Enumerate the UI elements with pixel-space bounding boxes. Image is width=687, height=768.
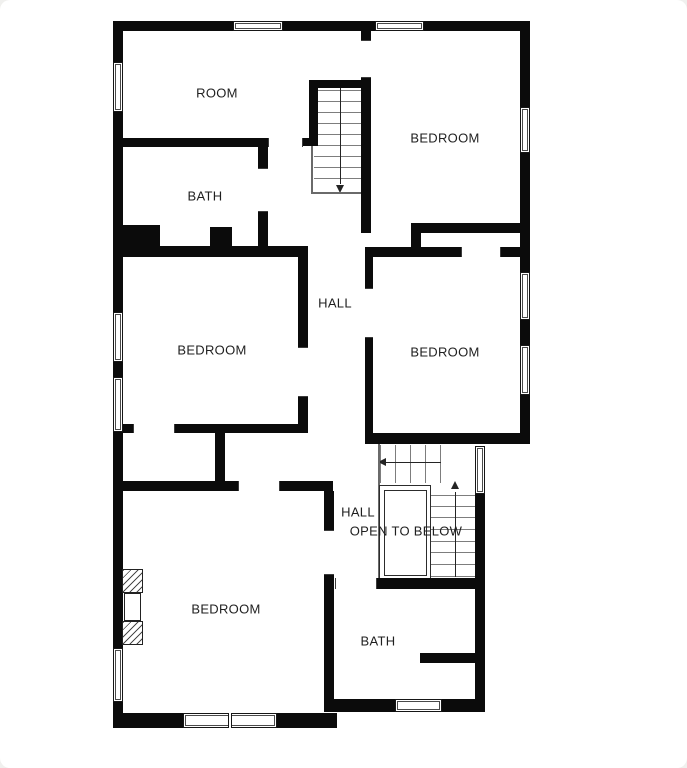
wall-segment <box>411 223 530 233</box>
door-opening <box>258 168 268 212</box>
wall-segment <box>324 491 334 530</box>
door-jamb <box>461 247 462 257</box>
floor-plan: ROOMBATHHALLBEDROOMBEDROOMBEDROOMBEDROOM… <box>0 0 687 768</box>
wall-segment <box>365 338 373 433</box>
room-label-hall-upper: HALL <box>318 296 352 311</box>
wall-segment <box>277 713 337 728</box>
wall-segment <box>475 494 485 712</box>
wall-segment <box>113 21 233 31</box>
door-opening <box>324 530 334 575</box>
stair-up-arrow <box>451 481 459 489</box>
wall-segment <box>298 257 308 347</box>
stair-tread <box>410 445 411 483</box>
window-glass-line <box>115 650 121 700</box>
stair-tread <box>314 134 361 135</box>
door-jamb <box>376 578 377 589</box>
door-jamb <box>298 347 308 348</box>
stair-tread <box>431 564 475 565</box>
room-label-bedroom-mid-right: BEDROOM <box>410 345 479 360</box>
door-jamb <box>302 138 303 147</box>
door-jamb <box>361 40 371 41</box>
window-glass-line <box>377 23 422 29</box>
room-label-open-to-below: OPEN TO BELOW <box>350 524 463 539</box>
wall-segment <box>365 257 373 288</box>
wall-segment <box>113 362 123 377</box>
wall-segment <box>520 21 530 107</box>
floor-plan-image: ROOMBATHHALLBEDROOMBEDROOMBEDROOMBEDROOM… <box>0 0 687 768</box>
door-jamb <box>268 138 269 147</box>
stair-direction-line <box>385 462 441 463</box>
door-jamb <box>365 337 373 338</box>
wall-segment <box>210 227 232 246</box>
stair-tread <box>314 123 361 124</box>
door-opening <box>361 40 371 78</box>
fireplace-firebox <box>124 593 141 621</box>
stair-tread <box>314 145 361 146</box>
wall-segment <box>501 247 520 257</box>
wall-segment <box>420 653 477 663</box>
wall-segment <box>520 320 530 345</box>
wall-segment <box>113 138 268 147</box>
room-label-bedroom-bottom-left: BEDROOM <box>191 602 260 617</box>
wall-segment <box>113 432 123 648</box>
door-jamb <box>365 288 373 289</box>
room-label-bath-upper: BATH <box>188 189 223 204</box>
wall-segment <box>215 433 225 481</box>
wall-segment <box>411 233 421 247</box>
fireplace-hatch <box>122 569 143 593</box>
stair-tread <box>425 445 426 483</box>
room-label-bedroom-top-right: BEDROOM <box>410 131 479 146</box>
door-jamb <box>279 481 280 491</box>
stair-direction-line <box>340 88 341 184</box>
door-opening <box>268 138 303 147</box>
stair-tread <box>314 112 361 113</box>
wall-segment <box>113 246 308 257</box>
door-jamb <box>324 574 334 575</box>
room-label-bedroom-mid-left: BEDROOM <box>177 343 246 358</box>
stair-tread <box>431 517 475 518</box>
stair-tread <box>431 576 475 577</box>
window-glass-line <box>522 274 528 318</box>
door-opening <box>335 578 377 589</box>
window-glass-line <box>235 23 281 29</box>
wall-segment <box>361 78 371 233</box>
wall-segment <box>258 212 268 246</box>
door-jamb <box>174 424 175 433</box>
stair-tread <box>314 156 361 157</box>
door-jamb <box>361 77 371 78</box>
door-jamb <box>133 424 134 433</box>
stair-tread <box>431 495 475 496</box>
door-jamb <box>238 481 239 491</box>
stair-tread <box>314 90 361 91</box>
wall-segment <box>113 481 238 491</box>
window-glass-line <box>477 448 483 492</box>
wall-segment <box>365 247 461 257</box>
wall-segment <box>309 80 318 145</box>
stair-tread <box>431 506 475 507</box>
stair-tread <box>431 552 475 553</box>
door-jamb <box>500 247 501 257</box>
door-jamb <box>258 211 268 212</box>
room-label-room: ROOM <box>196 86 238 101</box>
door-jamb <box>258 168 268 169</box>
wall-segment <box>280 481 333 491</box>
wall-segment <box>520 153 530 272</box>
door-opening <box>133 424 175 433</box>
stair-tread <box>431 541 475 542</box>
wall-segment <box>113 21 123 62</box>
door-jamb <box>324 530 334 531</box>
window-glass-line <box>397 701 440 710</box>
wall-segment <box>324 575 334 712</box>
wall-segment <box>365 433 530 444</box>
wall-segment <box>258 147 268 168</box>
room-label-bath-lower: BATH <box>361 634 396 649</box>
wall-segment <box>424 21 530 31</box>
door-opening <box>461 247 501 257</box>
stair-tread <box>314 178 361 179</box>
stair-tread <box>440 445 441 483</box>
window-glass-line <box>115 379 121 430</box>
stair-tread <box>395 445 396 483</box>
window-glass-line <box>115 314 121 360</box>
window-divider <box>228 713 232 728</box>
door-opening <box>365 288 373 338</box>
door-opening <box>298 347 308 397</box>
wall-segment <box>325 699 395 712</box>
window-glass-line <box>115 64 121 110</box>
room-label-hall-lower: HALL <box>341 505 375 520</box>
wall-segment <box>309 80 367 88</box>
door-opening <box>238 481 280 491</box>
wall-segment <box>175 424 303 433</box>
window-glass-line <box>522 109 528 151</box>
stair-tread <box>314 101 361 102</box>
door-jamb <box>298 396 308 397</box>
stair-tread <box>314 167 361 168</box>
door-jamb <box>335 578 336 589</box>
stair-rail <box>311 145 313 194</box>
wall-segment <box>113 713 183 728</box>
stair-bottom-line <box>311 192 362 194</box>
wall-segment <box>123 424 133 433</box>
window-glass-line <box>522 347 528 393</box>
wall-segment <box>377 578 477 589</box>
wall-segment <box>123 225 160 246</box>
fireplace-hatch <box>122 621 143 645</box>
